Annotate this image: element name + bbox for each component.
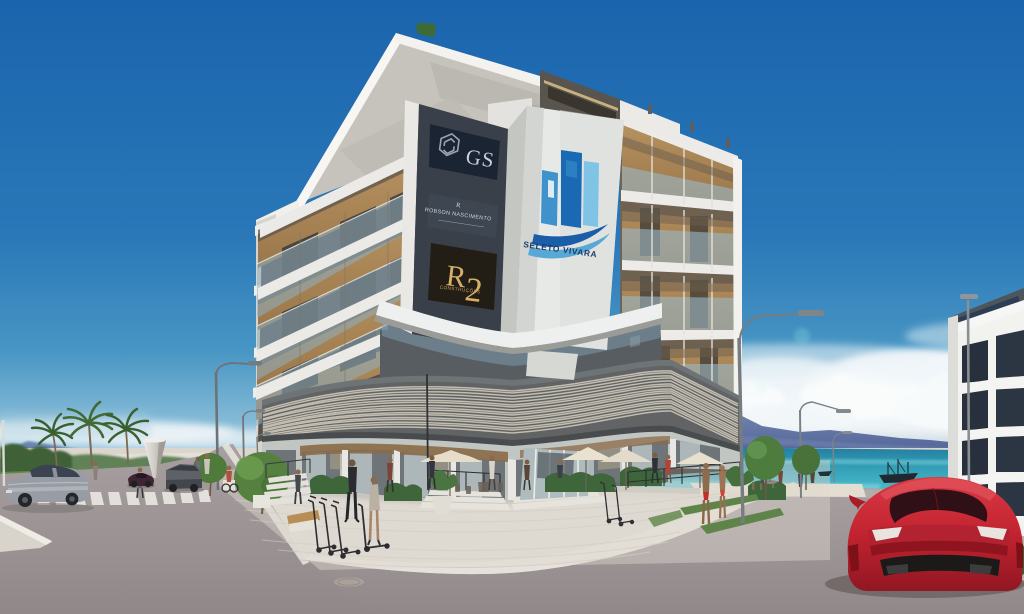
- svg-text:GS: GS: [464, 144, 496, 172]
